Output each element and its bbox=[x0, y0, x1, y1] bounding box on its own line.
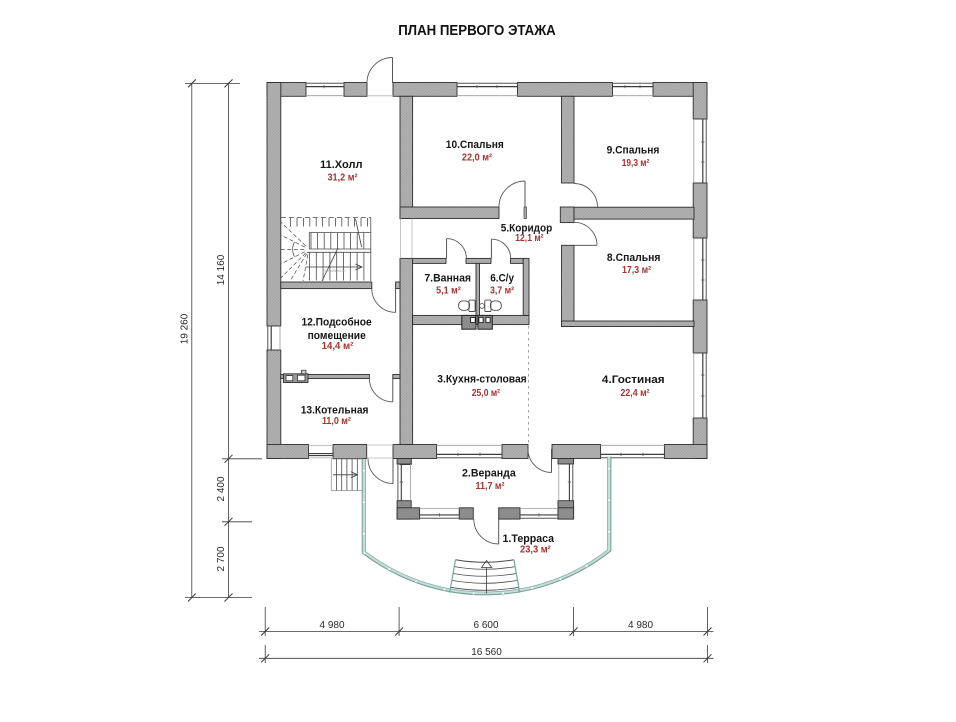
svg-text:11,0 м²: 11,0 м² bbox=[322, 416, 351, 427]
svg-text:помещение: помещение bbox=[308, 330, 366, 342]
svg-text:19,3 м²: 19,3 м² bbox=[622, 158, 650, 169]
svg-text:6 600: 6 600 bbox=[473, 620, 498, 631]
svg-text:3.Кухня-столовая: 3.Кухня-столовая bbox=[437, 373, 526, 385]
svg-text:16 560: 16 560 bbox=[471, 647, 502, 658]
svg-text:2 700: 2 700 bbox=[216, 546, 227, 571]
svg-text:12.Подсобное: 12.Подсобное bbox=[301, 317, 371, 329]
svg-text:11,7 м²: 11,7 м² bbox=[476, 481, 506, 492]
svg-text:22,0 м²: 22,0 м² bbox=[462, 152, 493, 163]
svg-text:23,3 м²: 23,3 м² bbox=[520, 545, 551, 556]
svg-text:8.Спальня: 8.Спальня bbox=[607, 252, 661, 264]
svg-text:19 260: 19 260 bbox=[180, 313, 191, 344]
svg-text:22,4 м²: 22,4 м² bbox=[621, 388, 651, 399]
svg-text:3,7 м²: 3,7 м² bbox=[490, 286, 515, 297]
svg-text:1.Терраса: 1.Терраса bbox=[503, 533, 555, 545]
svg-text:14 160: 14 160 bbox=[216, 254, 227, 285]
svg-text:4 980: 4 980 bbox=[319, 620, 344, 631]
svg-text:11.Холл: 11.Холл bbox=[320, 159, 363, 171]
svg-text:10.Спальня: 10.Спальня bbox=[446, 139, 504, 151]
svg-text:6.С/у: 6.С/у bbox=[490, 273, 515, 285]
svg-text:ПЛАН ПЕРВОГО ЭТАЖА: ПЛАН ПЕРВОГО ЭТАЖА bbox=[398, 23, 556, 39]
svg-text:25,0 м²: 25,0 м² bbox=[472, 388, 501, 399]
svg-text:9.Спальня: 9.Спальня bbox=[607, 145, 660, 157]
svg-text:2.Веранда: 2.Веранда bbox=[462, 468, 517, 480]
svg-text:17,3 м²: 17,3 м² bbox=[622, 265, 652, 276]
svg-text:2100x250x150: 2100x250x150 bbox=[323, 269, 346, 273]
svg-text:7.Ванная: 7.Ванная bbox=[424, 273, 471, 285]
svg-text:12,1 м²: 12,1 м² bbox=[515, 233, 544, 244]
svg-text:5,1 м²: 5,1 м² bbox=[436, 286, 461, 297]
svg-text:4 980: 4 980 bbox=[628, 620, 653, 631]
svg-text:2 400: 2 400 bbox=[216, 476, 227, 501]
svg-text:13.Котельная: 13.Котельная bbox=[301, 405, 369, 417]
svg-text:31,2 м²: 31,2 м² bbox=[328, 173, 359, 184]
svg-text:4.Гостиная: 4.Гостиная bbox=[602, 374, 665, 386]
svg-text:14,4 м²: 14,4 м² bbox=[322, 341, 354, 352]
